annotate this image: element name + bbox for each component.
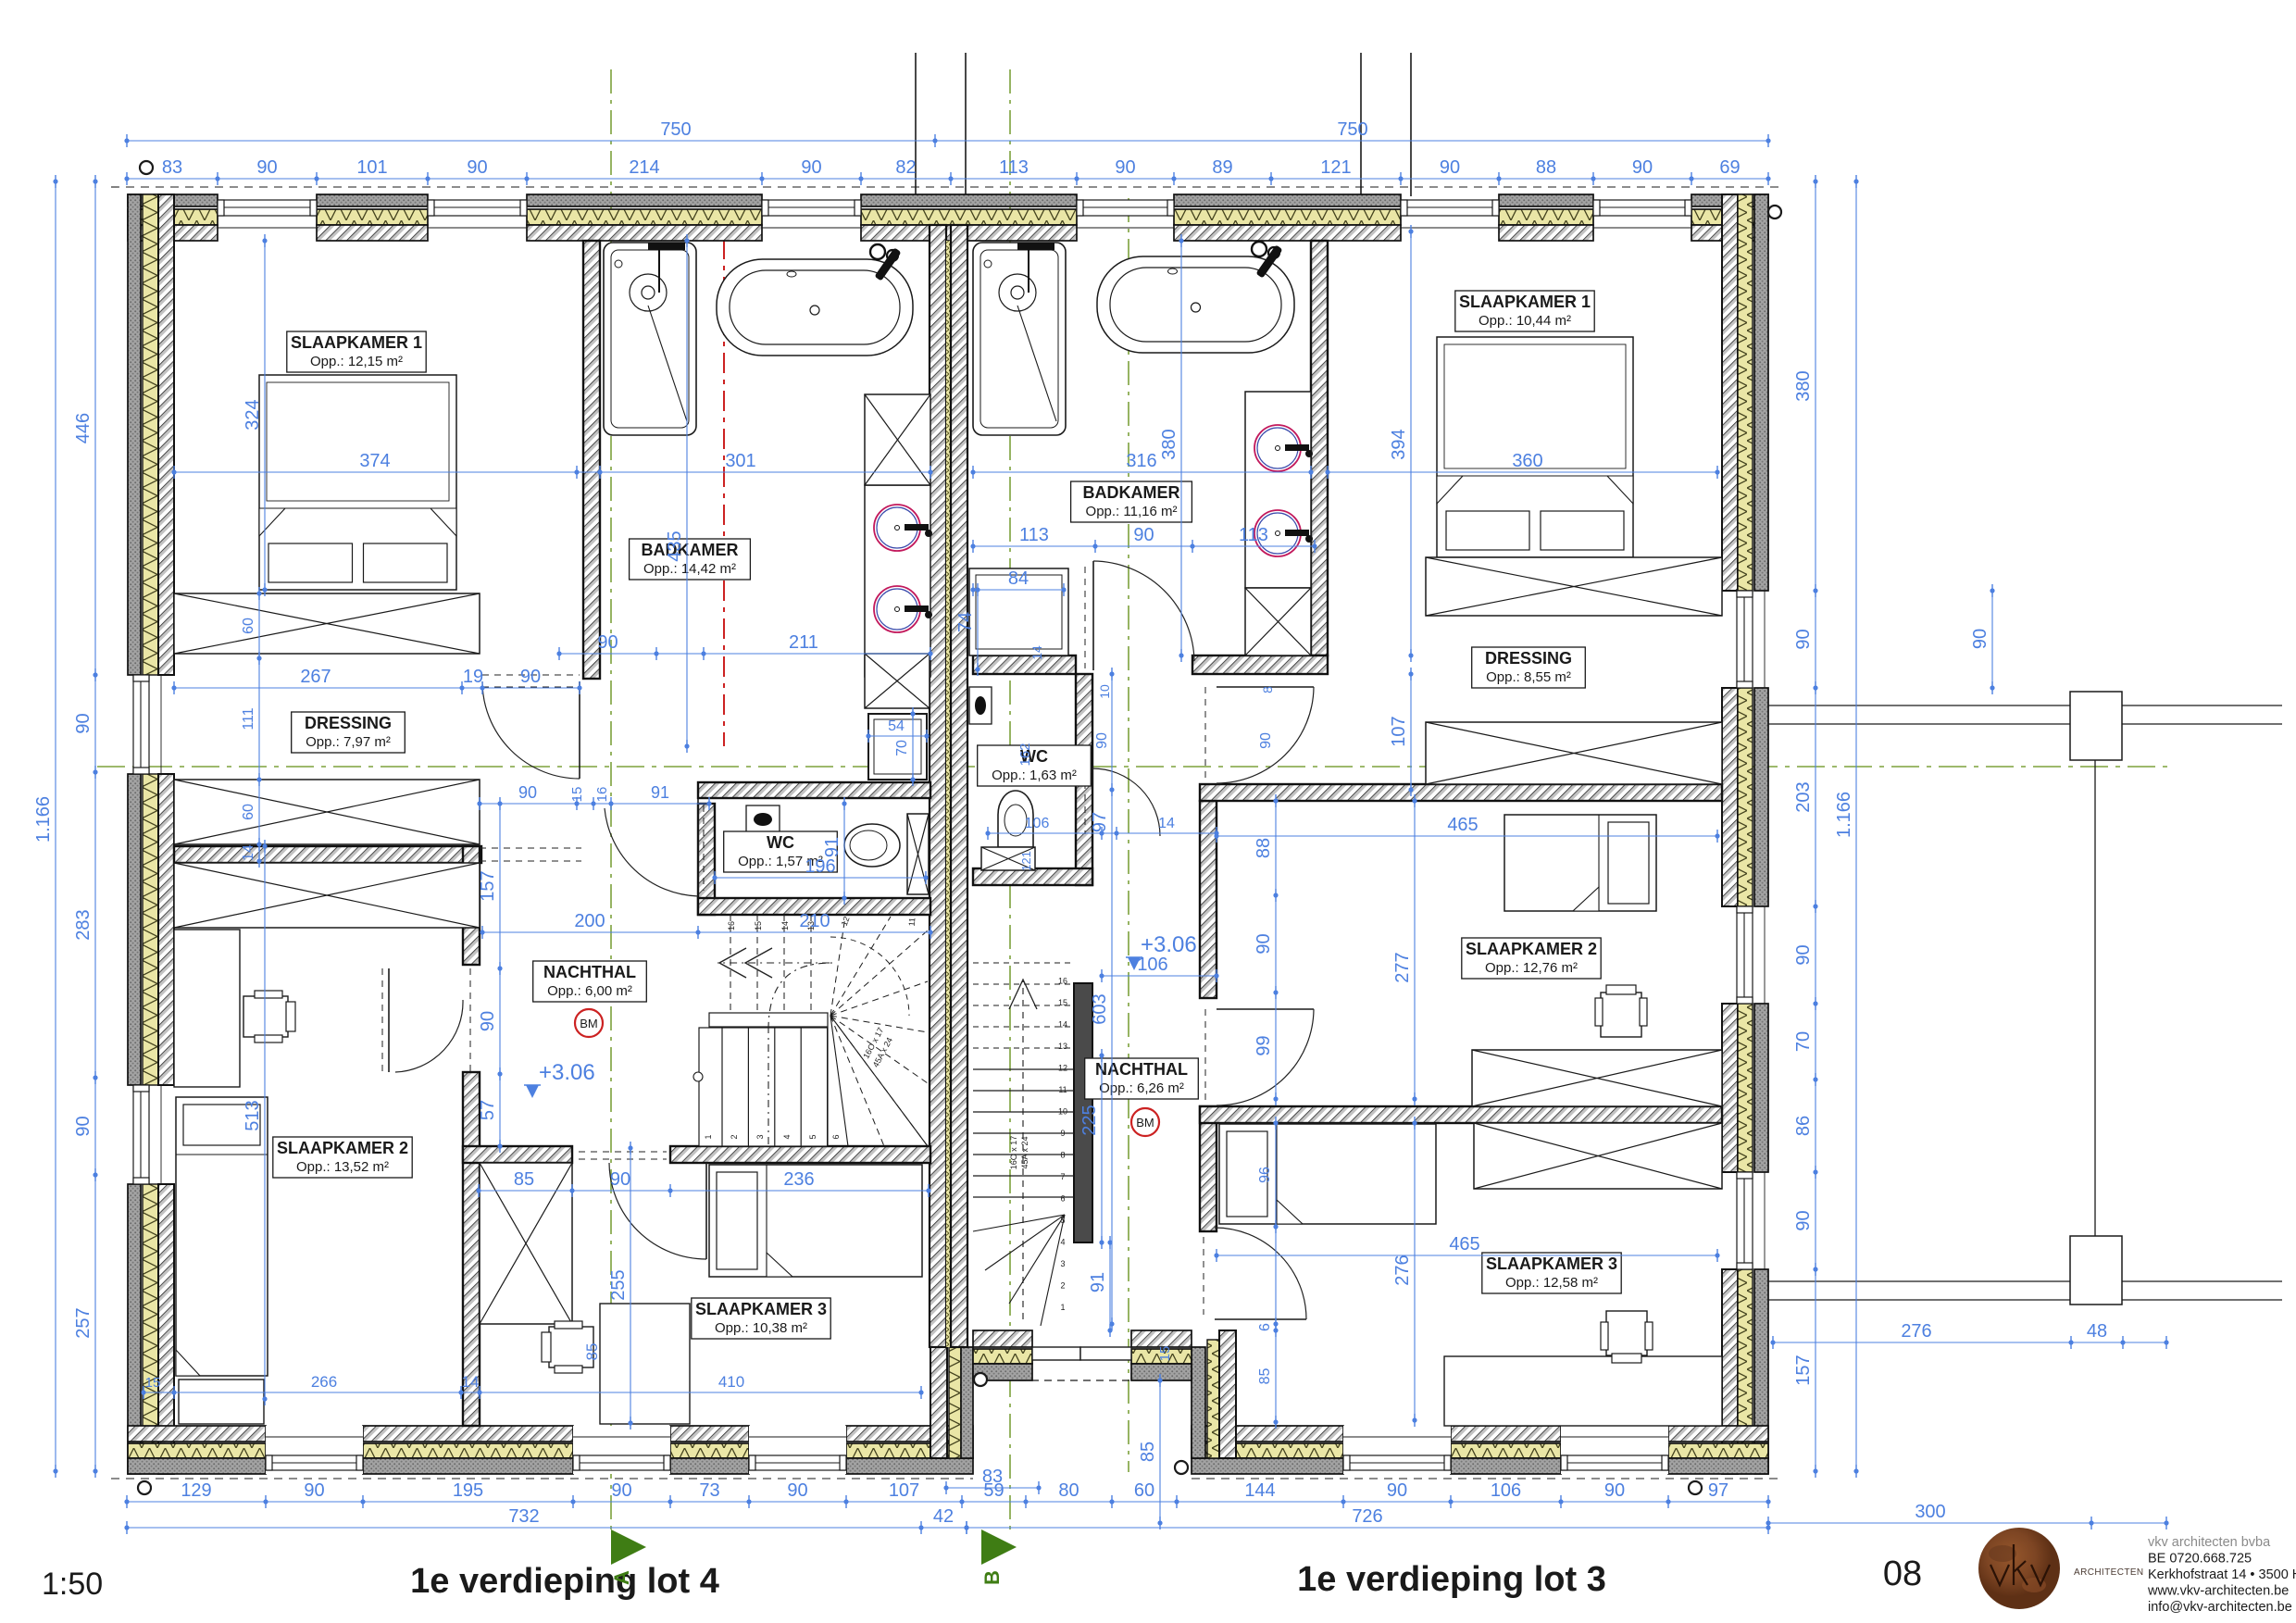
svg-text:8: 8 [1060,1151,1065,1160]
svg-text:106: 106 [1491,1480,1521,1501]
svg-text:90: 90 [304,1480,324,1501]
svg-text:14: 14 [1029,645,1044,660]
svg-text:16O x 17: 16O x 17 [1009,1136,1018,1170]
svg-text:Opp.: 6,00 m²: Opp.: 6,00 m² [547,983,632,999]
svg-text:3: 3 [1060,1259,1065,1268]
svg-text:14: 14 [462,1373,480,1391]
svg-text:88: 88 [1536,157,1556,178]
svg-text:60: 60 [241,618,256,634]
svg-text:91: 91 [651,783,669,802]
svg-text:SLAAPKAMER 2: SLAAPKAMER 2 [1466,940,1597,958]
svg-text:DRESSING: DRESSING [1485,649,1572,668]
svg-text:97: 97 [1708,1480,1728,1501]
svg-text:380: 380 [1159,429,1179,459]
svg-text:1: 1 [704,1134,713,1139]
svg-text:83: 83 [162,157,182,178]
svg-text:16: 16 [1058,977,1067,986]
svg-text:5: 5 [1060,1216,1065,1225]
svg-text:info@vkv-architecten.be: info@vkv-architecten.be [2148,1600,2292,1615]
svg-text:6: 6 [1060,1194,1065,1204]
svg-text:15: 15 [1157,1346,1173,1362]
svg-text:BE 0720.668.725: BE 0720.668.725 [2148,1552,2252,1567]
svg-text:195: 195 [453,1480,483,1501]
svg-text:257: 257 [73,1307,94,1338]
svg-text:74: 74 [955,612,976,632]
svg-text:B: B [980,1570,1004,1585]
svg-text:16: 16 [727,921,736,930]
svg-text:12: 12 [1058,1064,1067,1073]
svg-text:85: 85 [514,1169,534,1190]
svg-text:A: A [610,1570,633,1585]
svg-text:85: 85 [1138,1442,1158,1462]
svg-text:277: 277 [1392,952,1413,982]
svg-text:8: 8 [1260,686,1275,693]
svg-text:SLAAPKAMER 3: SLAAPKAMER 3 [695,1300,827,1318]
svg-text:90: 90 [611,1480,631,1501]
svg-text:48: 48 [2087,1321,2107,1342]
svg-text:2: 2 [1060,1281,1065,1291]
svg-text:42: 42 [933,1506,954,1527]
svg-text:1.166: 1.166 [33,796,54,843]
svg-text:BADKAMER: BADKAMER [642,541,739,559]
svg-text:90: 90 [1793,1210,1814,1230]
svg-text:446: 446 [73,413,94,443]
svg-text:15: 15 [754,921,763,930]
svg-text:BM: BM [580,1017,598,1030]
svg-text:ARCHITECTEN: ARCHITECTEN [2074,1567,2144,1578]
svg-text:90: 90 [1094,732,1110,749]
svg-text:1e verdieping lot 3: 1e verdieping lot 3 [1297,1560,1606,1599]
svg-text:210: 210 [799,911,830,931]
svg-text:157: 157 [1793,1355,1814,1385]
svg-text:85: 85 [583,1343,601,1361]
svg-text:121: 121 [1320,157,1351,178]
svg-text:90: 90 [1387,1480,1407,1501]
svg-text:SLAAPKAMER 3: SLAAPKAMER 3 [1486,1255,1617,1273]
svg-text:89: 89 [1212,157,1232,178]
svg-text:316: 316 [1126,451,1156,471]
svg-text:82: 82 [895,157,916,178]
svg-text:106: 106 [1137,955,1167,975]
svg-text:276: 276 [1392,1255,1413,1285]
svg-text:13: 13 [1058,1042,1067,1051]
svg-text:374: 374 [359,451,390,471]
svg-text:DRESSING: DRESSING [305,714,392,732]
svg-text:Opp.: 11,16 m²: Opp.: 11,16 m² [1086,504,1178,519]
svg-text:1e verdieping lot 4: 1e verdieping lot 4 [410,1562,719,1601]
svg-text:10: 10 [1058,1107,1067,1117]
svg-text:88: 88 [1254,838,1274,858]
svg-text:267: 267 [300,667,331,687]
svg-text:465: 465 [1447,815,1478,835]
svg-text:85: 85 [1257,1368,1273,1385]
svg-text:15: 15 [1058,998,1067,1007]
svg-text:SLAAPKAMER 2: SLAAPKAMER 2 [277,1139,408,1157]
svg-text:90: 90 [73,1116,94,1136]
svg-text:15: 15 [569,787,585,803]
svg-text:90: 90 [787,1480,807,1501]
svg-text:6: 6 [1257,1323,1273,1331]
svg-text:300: 300 [1915,1502,1945,1522]
svg-text:90: 90 [1632,157,1653,178]
svg-text:324: 324 [243,399,263,430]
svg-text:750: 750 [1337,119,1367,140]
svg-text:90: 90 [520,667,541,687]
svg-text:214: 214 [629,157,659,178]
svg-text:2: 2 [730,1134,739,1139]
svg-text:255: 255 [608,1269,629,1300]
svg-text:283: 283 [73,909,94,940]
svg-text:www.vkv-architecten.be: www.vkv-architecten.be [2147,1584,2289,1599]
svg-text:90: 90 [1440,157,1460,178]
svg-text:NACHTHAL: NACHTHAL [1095,1060,1188,1079]
svg-text:157: 157 [478,870,498,901]
svg-text:603: 603 [1090,993,1110,1024]
svg-text:80: 80 [1058,1480,1079,1501]
svg-text:08: 08 [1883,1554,1922,1593]
svg-text:WC: WC [767,833,794,852]
svg-text:84: 84 [1008,568,1029,589]
svg-text:70: 70 [894,740,910,756]
svg-text:1: 1 [1060,1303,1065,1312]
svg-text:vkv architecten bvba: vkv architecten bvba [2148,1535,2271,1550]
svg-text:SLAAPKAMER 1: SLAAPKAMER 1 [1459,293,1591,311]
svg-text:513: 513 [243,1100,263,1130]
svg-text:225: 225 [1079,1105,1100,1135]
svg-text:90: 90 [1254,933,1274,954]
svg-text:113: 113 [999,157,1029,178]
svg-text:97: 97 [1090,812,1110,832]
svg-text:394: 394 [1389,429,1409,459]
svg-text:91: 91 [1088,1272,1108,1292]
svg-text:SLAAPKAMER 1: SLAAPKAMER 1 [291,333,422,352]
svg-text:16: 16 [594,787,610,803]
svg-text:121: 121 [1019,851,1033,871]
svg-text:410: 410 [718,1373,744,1391]
svg-text:7: 7 [1060,1172,1065,1181]
svg-text:90: 90 [256,157,277,178]
svg-text:86: 86 [1793,1116,1814,1136]
svg-text:Opp.: 12,58 m²: Opp.: 12,58 m² [1505,1275,1598,1291]
svg-text:1.166: 1.166 [1834,792,1854,838]
svg-text:90: 90 [518,783,537,802]
svg-text:60: 60 [1134,1480,1154,1501]
svg-text:6: 6 [831,1134,841,1139]
svg-text:Opp.: 1,63 m²: Opp.: 1,63 m² [992,768,1077,783]
svg-text:Opp.: 8,55 m²: Opp.: 8,55 m² [1486,669,1571,685]
svg-text:732: 732 [508,1506,539,1527]
svg-text:Opp.: 7,97 m²: Opp.: 7,97 m² [306,734,391,750]
svg-text:11: 11 [907,918,917,927]
svg-text:15: 15 [145,1375,161,1391]
svg-text:3: 3 [755,1134,765,1139]
svg-text:106: 106 [1025,816,1050,831]
svg-text:90: 90 [1970,629,1990,649]
svg-text:73: 73 [699,1480,719,1501]
svg-text:Opp.: 13,52 m²: Opp.: 13,52 m² [296,1159,389,1175]
svg-text:111: 111 [241,707,256,730]
svg-text:90: 90 [1604,1480,1625,1501]
svg-text:90: 90 [478,1011,498,1031]
svg-text:96: 96 [1257,1167,1273,1183]
svg-text:NACHTHAL: NACHTHAL [543,963,636,981]
svg-text:107: 107 [1389,716,1409,746]
svg-text:90: 90 [73,713,94,733]
svg-text:57: 57 [478,1100,498,1120]
svg-text:70: 70 [1793,1031,1814,1052]
svg-text:19: 19 [463,667,483,687]
svg-text:45A x 24: 45A x 24 [1020,1136,1029,1168]
svg-text:90: 90 [1793,629,1814,649]
svg-text:4: 4 [782,1134,792,1139]
svg-text:69: 69 [1719,157,1740,178]
svg-text:1:50: 1:50 [42,1567,103,1602]
svg-text:144: 144 [1244,1480,1275,1501]
svg-text:54: 54 [888,718,905,734]
svg-text:BM: BM [1136,1116,1154,1130]
svg-text:90: 90 [1115,157,1135,178]
svg-text:Opp.: 12,15 m²: Opp.: 12,15 m² [310,354,403,369]
svg-text:90: 90 [801,157,821,178]
svg-text:14: 14 [1058,1020,1067,1030]
svg-text:14: 14 [241,844,256,861]
svg-text:10: 10 [1097,684,1112,699]
svg-text:83: 83 [982,1467,1003,1487]
svg-text:465: 465 [1449,1234,1479,1255]
svg-text:9: 9 [1060,1129,1065,1138]
svg-text:380: 380 [1793,370,1814,401]
svg-text:90: 90 [1258,732,1274,749]
svg-text:113: 113 [1239,525,1268,545]
svg-text:60: 60 [241,804,256,820]
svg-text:14: 14 [1158,816,1175,831]
svg-text:Opp.: 12,76 m²: Opp.: 12,76 m² [1485,960,1578,976]
svg-text:+3.06: +3.06 [539,1060,595,1085]
svg-text:301: 301 [725,451,755,471]
svg-text:90: 90 [1133,525,1154,545]
svg-text:Opp.: 10,38 m²: Opp.: 10,38 m² [715,1320,807,1336]
svg-text:266: 266 [311,1373,337,1391]
svg-text:Kerkhofstraat 14 • 3500 Hassel: Kerkhofstraat 14 • 3500 Hasselt [2148,1567,2296,1582]
svg-text:236: 236 [783,1169,814,1190]
svg-text:129: 129 [181,1480,211,1501]
svg-text:99: 99 [1254,1035,1274,1055]
svg-text:200: 200 [574,911,605,931]
svg-text:101: 101 [356,157,387,178]
svg-text:211: 211 [789,632,818,653]
svg-text:Opp.: 14,42 m²: Opp.: 14,42 m² [643,561,736,577]
svg-text:203: 203 [1793,781,1814,812]
svg-text:196: 196 [805,856,835,877]
svg-text:90: 90 [610,1169,630,1190]
svg-text:11: 11 [1058,1085,1067,1094]
svg-text:Opp.: 10,44 m²: Opp.: 10,44 m² [1479,313,1571,329]
svg-text:750: 750 [660,119,691,140]
svg-text:90: 90 [597,632,618,653]
svg-text:91: 91 [822,837,842,857]
svg-text:726: 726 [1352,1506,1382,1527]
svg-text:90: 90 [1793,944,1814,965]
svg-text:107: 107 [889,1480,919,1501]
svg-text:276: 276 [1901,1321,1931,1342]
svg-text:+3.06: +3.06 [1141,932,1197,957]
svg-text:360: 360 [1512,451,1542,471]
svg-text:BADKAMER: BADKAMER [1083,483,1180,502]
svg-text:162: 162 [1017,743,1033,766]
svg-text:113: 113 [1019,525,1049,545]
svg-text:90: 90 [467,157,487,178]
svg-text:4: 4 [1060,1238,1065,1247]
svg-text:435: 435 [665,531,685,561]
svg-text:5: 5 [808,1134,817,1139]
svg-text:14: 14 [780,921,790,930]
